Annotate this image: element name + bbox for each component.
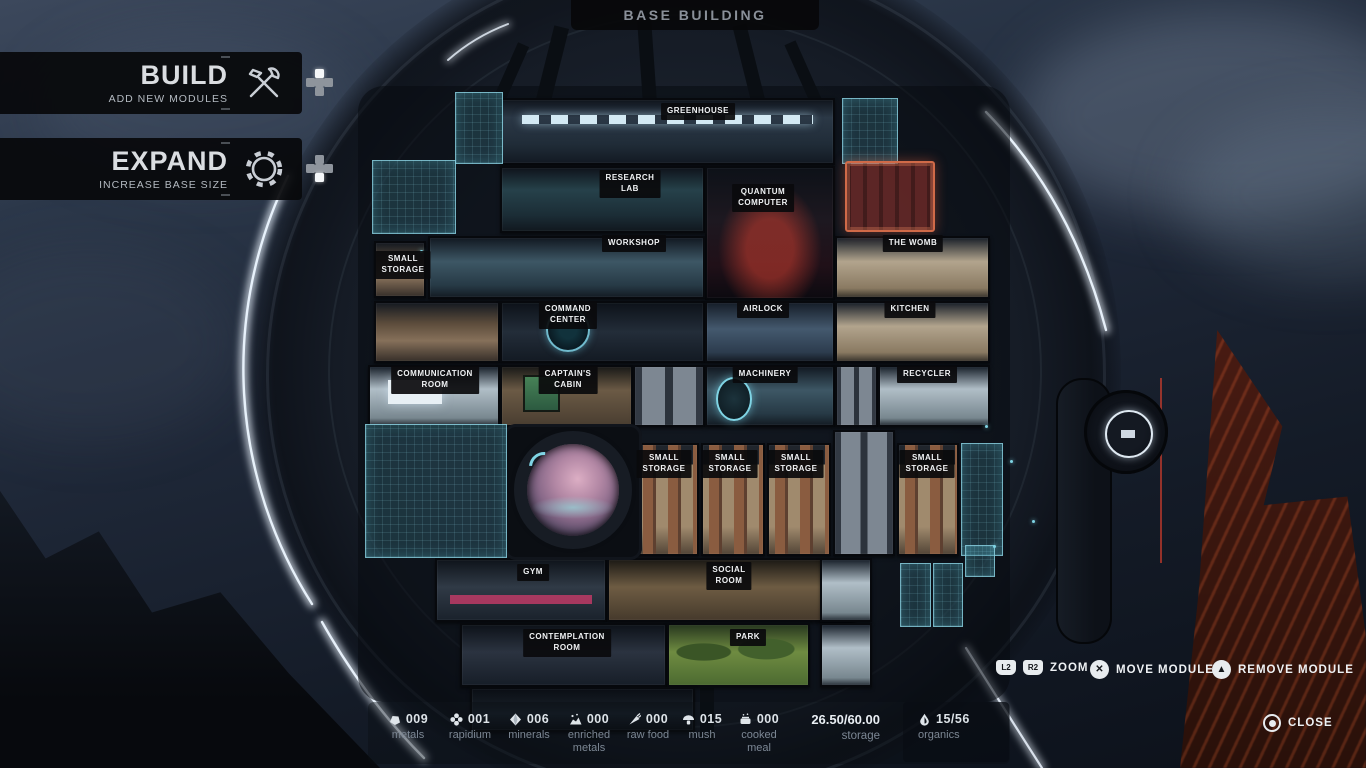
- resource-value: 006: [527, 712, 549, 726]
- resource-value: 009: [406, 712, 428, 726]
- module-shower[interactable]: [820, 623, 872, 687]
- build-button[interactable]: BUILD ADD NEW MODULES: [0, 52, 302, 114]
- enriched-metals-icon: [569, 713, 582, 726]
- mush-icon: [682, 713, 695, 726]
- move-module-control[interactable]: ✕ MOVE MODULE: [1090, 660, 1214, 679]
- resource-mush: 015 mush: [676, 712, 728, 742]
- module-label-research-lab: RESEARCH LAB: [600, 170, 661, 198]
- metals-icon: [388, 713, 401, 726]
- expand-label: EXPAND: [99, 148, 228, 175]
- module-elevator[interactable]: [835, 365, 878, 427]
- l2-button-icon[interactable]: L2: [996, 660, 1016, 675]
- module-label-captains-cabin: CAPTAIN'S CABIN: [539, 366, 598, 394]
- module-label-gym: GYM: [517, 564, 549, 581]
- marker-dot: [993, 545, 996, 548]
- resource-label: rapidium: [438, 729, 502, 742]
- minerals-icon: [509, 713, 522, 726]
- resource-value: 000: [757, 712, 779, 726]
- module-label-recycler: RECYCLER: [897, 366, 957, 383]
- empty-slot[interactable]: [842, 98, 898, 164]
- module-label-social-room: SOCIAL ROOM: [706, 562, 751, 590]
- resource-value: 001: [468, 712, 490, 726]
- module-label-contemplation-room: CONTEMPLATION ROOM: [523, 629, 611, 657]
- r2-button-icon[interactable]: R2: [1023, 660, 1043, 675]
- cooked-meal-icon: [739, 713, 752, 726]
- resource-label: raw food: [618, 729, 678, 742]
- module-label-greenhouse: GREENHOUSE: [661, 103, 735, 120]
- module-elevator[interactable]: [633, 365, 705, 427]
- dpad-down-icon: [306, 155, 333, 182]
- observation-porthole[interactable]: [514, 431, 632, 549]
- module-label-small-storage-b: SMALL STORAGE: [703, 450, 758, 478]
- move-module-label: MOVE MODULE: [1116, 664, 1214, 676]
- module-label-kitchen: KITCHEN: [884, 301, 935, 318]
- resource-value: 000: [587, 712, 609, 726]
- empty-slot[interactable]: [965, 545, 995, 577]
- zoom-control[interactable]: L2 R2 ZOOM: [996, 660, 1089, 675]
- empty-slot[interactable]: [372, 160, 456, 234]
- close-button[interactable]: CLOSE: [1263, 714, 1333, 732]
- module-shower[interactable]: [820, 558, 872, 622]
- empty-slot[interactable]: [961, 443, 1003, 556]
- module-elevator-shaft[interactable]: [833, 430, 895, 556]
- page-title-text: BASE BUILDING: [624, 7, 767, 23]
- storage-label: storage: [788, 730, 880, 742]
- organics-label: organics: [918, 729, 970, 742]
- module-label-airlock: AIRLOCK: [737, 301, 789, 318]
- organics-icon: [918, 713, 931, 726]
- resource-label: mush: [676, 729, 728, 742]
- zoom-label: ZOOM: [1050, 662, 1089, 674]
- module-label-small-storage-c: SMALL STORAGE: [769, 450, 824, 478]
- module-label-park: PARK: [730, 629, 766, 646]
- resource-enriched-metals: 000 enriched metals: [556, 712, 622, 755]
- hammer-wrench-icon: [242, 61, 286, 105]
- resource-cooked-meal: 000 cooked meal: [730, 712, 788, 755]
- build-sublabel: ADD NEW MODULES: [109, 93, 228, 105]
- module-label-workshop: WORKSHOP: [602, 235, 666, 252]
- resource-label: minerals: [500, 729, 558, 742]
- marker-dot: [985, 425, 988, 428]
- module-storage-tanks[interactable]: [374, 301, 500, 363]
- selected-module-highlight[interactable]: [845, 161, 935, 232]
- resource-label: metals: [378, 729, 438, 742]
- raw-food-icon: [628, 713, 641, 726]
- marker-dot: [1032, 520, 1035, 523]
- gear-icon: [242, 147, 286, 191]
- resource-label: enriched metals: [556, 729, 622, 755]
- empty-slot[interactable]: [900, 563, 931, 627]
- base-building-screen: GREENHOUSE RESEARCH LAB QUANTUM COMPUTER…: [0, 0, 1366, 768]
- module-label-small-storage-a: SMALL STORAGE: [637, 450, 692, 478]
- remove-module-control[interactable]: ▲ REMOVE MODULE: [1212, 660, 1354, 679]
- module-label-communication-room: COMMUNICATION ROOM: [391, 366, 479, 394]
- resource-label: cooked meal: [730, 729, 788, 755]
- module-label-command-center: COMMAND CENTER: [539, 301, 597, 329]
- build-label: BUILD: [109, 62, 228, 89]
- rapidium-icon: [450, 713, 463, 726]
- close-label: CLOSE: [1288, 717, 1333, 729]
- triangle-button-icon[interactable]: ▲: [1212, 660, 1231, 679]
- empty-slot[interactable]: [455, 92, 503, 164]
- resource-rapidium: 001 rapidium: [438, 712, 502, 742]
- resource-value: 015: [700, 712, 722, 726]
- module-command-center[interactable]: [500, 301, 705, 363]
- expand-sublabel: INCREASE BASE SIZE: [99, 179, 228, 191]
- empty-slot[interactable]: [365, 424, 507, 558]
- cross-button-icon[interactable]: ✕: [1090, 660, 1109, 679]
- module-label-the-womb: THE WOMB: [883, 235, 943, 252]
- storage-value: 26.50/60.00: [788, 712, 880, 727]
- machinery-core: [716, 377, 752, 421]
- organics-value: 15/56: [936, 712, 970, 726]
- expand-button[interactable]: EXPAND INCREASE BASE SIZE: [0, 138, 302, 200]
- resource-metals: 009 metals: [378, 712, 438, 742]
- resource-raw-food: 000 raw food: [618, 712, 678, 742]
- page-title: BASE BUILDING: [571, 0, 819, 30]
- module-label-small-storage-d: SMALL STORAGE: [900, 450, 955, 478]
- module-label-quantum-computer: QUANTUM COMPUTER: [732, 184, 794, 212]
- module-label-machinery: MACHINERY: [733, 366, 798, 383]
- storage-capacity: 26.50/60.00 storage: [788, 712, 880, 742]
- empty-slot[interactable]: [933, 563, 963, 627]
- resource-organics: 15/56 organics: [918, 712, 970, 742]
- resource-value: 000: [646, 712, 668, 726]
- remove-module-label: REMOVE MODULE: [1238, 664, 1354, 676]
- marker-dot: [1010, 460, 1013, 463]
- dpad-up-icon: [306, 69, 333, 96]
- module-label-small-storage-left: SMALL STORAGE: [376, 251, 431, 279]
- circle-button-icon: [1263, 714, 1281, 732]
- resource-minerals: 006 minerals: [500, 712, 558, 742]
